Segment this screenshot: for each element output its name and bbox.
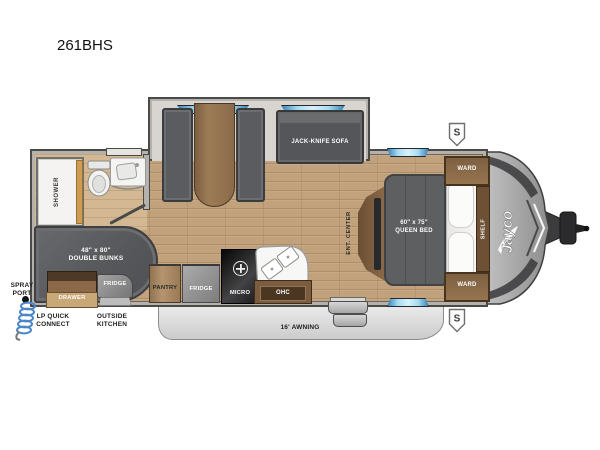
entry-step-2	[333, 314, 367, 327]
speaker-badge-bottom-letter: S	[454, 314, 461, 325]
kitchen-fridge-label: FRIDGE	[182, 286, 220, 293]
model-title: 261BHS	[57, 37, 113, 54]
tv-panel	[374, 198, 381, 270]
cooktop-burner-icon	[233, 261, 248, 276]
hitch	[546, 212, 589, 244]
awning-panel	[158, 306, 444, 340]
dinette-table	[194, 103, 235, 207]
brand-logo: Jayco	[499, 211, 516, 254]
floorplan-canvas: 261BHS 16' AWNING Jayco	[0, 0, 600, 450]
pillow-top	[448, 180, 474, 228]
speaker-badge-bottom: S	[448, 308, 466, 333]
speaker-badge-top-letter: S	[454, 128, 461, 139]
kitchen-fridge	[182, 264, 220, 303]
outside-fridge-label: FRIDGE	[97, 281, 133, 288]
pantry-cabinet	[149, 264, 181, 303]
window-bedroom-top	[387, 148, 429, 157]
shower-label-wrap: SHOWER	[36, 157, 78, 227]
entry-step-1	[328, 301, 368, 314]
shelf-label-wrap: SHELF	[476, 186, 490, 272]
ent-center-label-wrap: ENT. CENTER	[342, 200, 356, 266]
sofa-label: JACK-KNIFE SOFA	[276, 139, 364, 147]
ward-top-label: WARD	[444, 166, 490, 174]
bathroom-sink-icon	[109, 156, 149, 192]
drawer-label: DRAWER	[46, 295, 98, 302]
outside-kitchen-label: OUTSIDE KITCHEN	[86, 313, 138, 329]
shower-label: SHOWER	[54, 177, 60, 207]
lp-quick-connect-label: LP QUICK CONNECT	[30, 313, 76, 329]
speaker-badge-top: S	[448, 122, 466, 147]
window-bedroom-bottom	[387, 298, 429, 307]
ohc-label: OHC	[260, 290, 306, 298]
jack-knife-sofa	[276, 110, 364, 164]
bed-label: 60" x 75" QUEEN BED	[384, 220, 444, 235]
dinette-bench-right	[236, 108, 265, 202]
ent-center-label: ENT. CENTER	[346, 211, 352, 255]
pantry-label: PANTRY	[148, 285, 182, 292]
outside-fridge-sill	[99, 297, 131, 306]
spray-port-label: SPRAY PORT	[2, 282, 42, 298]
bathroom-vent	[106, 148, 142, 156]
bunks-label: 48" x 80" DOUBLE BUNKS	[44, 247, 148, 263]
outside-kitchen-counter	[47, 271, 97, 294]
ward-bottom-label: WARD	[444, 282, 490, 290]
dinette-bench-left	[162, 108, 193, 202]
shelf-label: SHELF	[480, 219, 486, 240]
